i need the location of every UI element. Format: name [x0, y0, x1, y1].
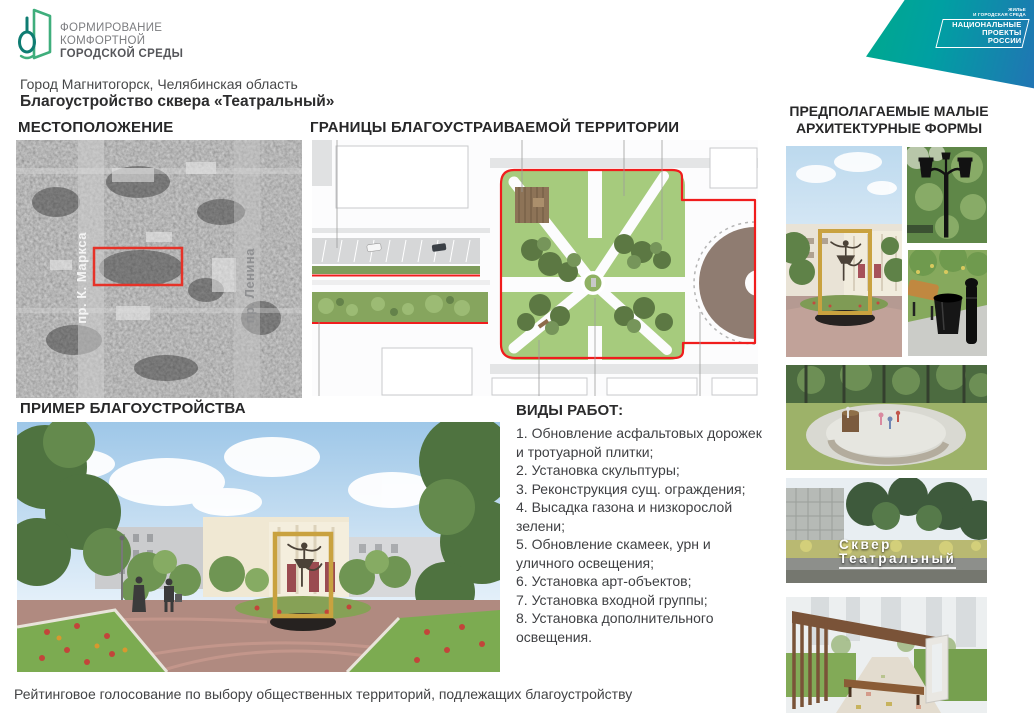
example-section-title: ПРИМЕР БЛАГОУСТРОЙСТВА [20, 400, 246, 417]
works-section: ВИДЫ РАБОТ: 1. Обновление асфальтовых до… [516, 402, 768, 646]
plan-wooden-deck [515, 187, 549, 223]
maf-title-line: АРХИТЕКТУРНЫЕ ФОРМЫ [776, 120, 1002, 137]
slide: ФОРМИРОВАНИЕ КОМФОРТНОЙ ГОРОДСКОЙ СРЕДЫ … [0, 0, 1034, 727]
location-section-title: МЕСТОПОЛОЖЕНИЕ [18, 119, 173, 136]
page-title: Благоустройство сквера «Театральный» [20, 93, 334, 111]
wooden-pergola-bench-render [786, 597, 987, 713]
footer-note: Рейтинговое голосование по выбору общест… [14, 686, 632, 702]
park-sign-line: Сквер [839, 538, 956, 552]
np-title-line: РОССИИ [952, 37, 1021, 45]
works-item: 3. Реконструкция сущ. ограждения; [516, 480, 768, 499]
park-render-ballerina-sculpture-photo [17, 422, 500, 672]
logo-line: ФОРМИРОВАНИЕ [60, 22, 183, 35]
skver-teatralny-sign-photo: Сквер Театральный [786, 478, 987, 583]
maf-title-line: ПРЕДПОЛАГАЕМЫЕ МАЛЫЕ [776, 103, 1002, 120]
boundaries-section-title: ГРАНИЦЫ БЛАГОУСТРАИВАЕМОЙ ТЕРРИТОРИИ [310, 119, 679, 136]
program-logo-text: ФОРМИРОВАНИЕ КОМФОРТНОЙ ГОРОДСКОЙ СРЕДЫ [60, 22, 183, 62]
logo-line: КОМФОРТНОЙ [60, 35, 183, 48]
national-projects-banner: ЖИЛЬЕ И ГОРОДСКАЯ СРЕДА НАЦИОНАЛЬНЫЕ ПРО… [866, 0, 1034, 96]
program-logo: ФОРМИРОВАНИЕ КОМФОРТНОЙ ГОРОДСКОЙ СРЕДЫ [12, 6, 183, 62]
national-projects-logo: ЖИЛЬЕ И ГОРОДСКАЯ СРЕДА НАЦИОНАЛЬНЫЕ ПРО… [939, 7, 1026, 48]
np-program-line: И ГОРОДСКАЯ СРЕДА [939, 12, 1026, 17]
bollard-silhouette [965, 278, 978, 344]
works-item: 4. Высадка газона и низкорослой зелени; [516, 498, 768, 535]
works-item: 6. Установка арт-объектов; [516, 572, 768, 591]
logo-line: ГОРОДСКОЙ СРЕДЫ [60, 48, 183, 61]
street-label-marksa: пр. К. Маркса [74, 232, 89, 324]
planter [842, 410, 859, 432]
bench-silhouette [907, 225, 933, 233]
urn-silhouette [934, 294, 963, 335]
maf-section-title: ПРЕДПОЛАГАЕМЫЕ МАЛЫЕ АРХИТЕКТУРНЫЕ ФОРМЫ [776, 103, 1002, 137]
park-sign-line: Театральный [839, 552, 956, 569]
works-item: 1. Обновление асфальтовых дорожек и трот… [516, 424, 768, 461]
ballerina-sculpture-in-frame-photo [786, 146, 902, 357]
bench-and-urn-photo [908, 250, 987, 356]
works-item: 5. Обновление скамеек, урн и уличного ос… [516, 535, 768, 572]
street-label-lenina: пр. Ленина [242, 248, 257, 323]
location-satellite-map: пр. К. Маркса пр. Ленина [16, 140, 302, 398]
round-bench-playground-render [786, 365, 987, 470]
plan-central-circle [581, 271, 605, 295]
site-plan-drawing [312, 140, 758, 396]
fkgs-leaf-book-icon [12, 6, 52, 62]
plan-green-strips [312, 266, 488, 323]
works-item: 7. Установка входной группы; [516, 591, 768, 610]
site-plan [312, 140, 758, 396]
np-title-box: НАЦИОНАЛЬНЫЕ ПРОЕКТЫ РОССИИ [935, 19, 1030, 48]
city-subtitle: Город Магнитогорск, Челябинская область [20, 76, 298, 92]
works-item: 2. Установка скульптуры; [516, 461, 768, 480]
park-lantern-photo [907, 147, 987, 243]
works-title: ВИДЫ РАБОТ: [516, 402, 768, 419]
works-item: 8. Установка дополнительного освещения. [516, 609, 768, 646]
satellite-map-image [16, 140, 302, 398]
park-sign-text: Сквер Театральный [839, 538, 956, 569]
